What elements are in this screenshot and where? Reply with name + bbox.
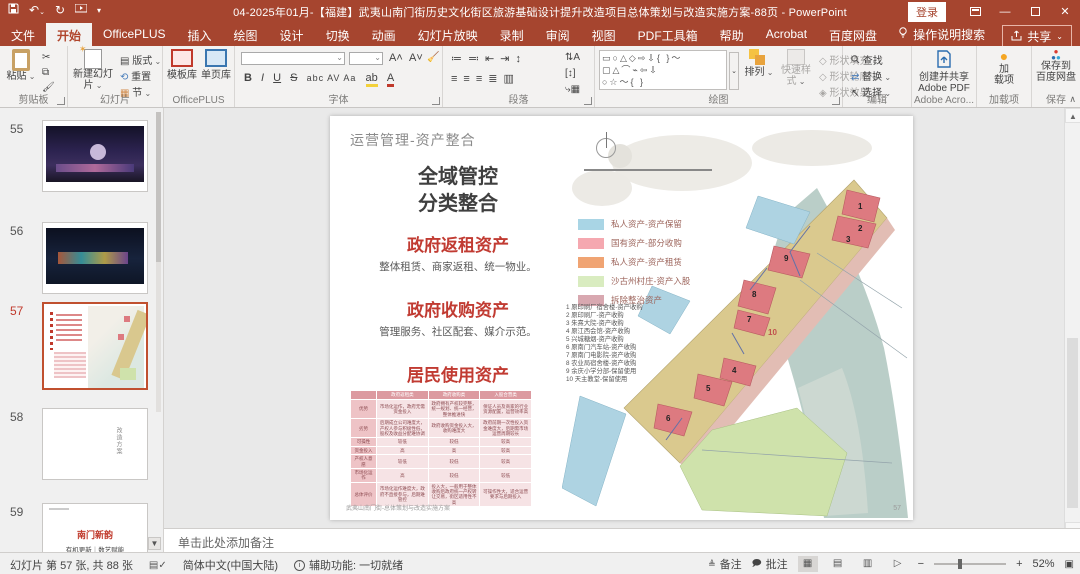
slide-thumbnail-panel: 55 56 57 58 改造方案 [0, 108, 164, 552]
thumbnail-slide-58[interactable]: 58 改造方案 [0, 408, 164, 486]
slide-counter: 幻灯片 第 57 张, 共 88 张 [10, 557, 133, 573]
close-button[interactable]: ✕ [1050, 0, 1080, 23]
tab-insert[interactable]: 插入 [177, 23, 223, 46]
arrange-icon [749, 49, 769, 67]
page-library-icon [205, 49, 227, 67]
italic-button[interactable]: I [261, 72, 264, 84]
ribbon-display-options-icon[interactable] [960, 0, 990, 23]
notes-toggle-button[interactable]: ≜ 备注 [708, 556, 742, 572]
map-marker: 5 [706, 384, 710, 393]
lightbulb-icon [898, 27, 908, 42]
section-desc: 整体租赁、商家返租、统一物业。 [358, 259, 558, 274]
tab-officeplus[interactable]: OfficePLUS [92, 23, 176, 46]
tab-design[interactable]: 设计 [269, 23, 315, 46]
indent-increase-icon[interactable]: ⇥ [500, 53, 515, 65]
replace-icon: ⇄ [851, 72, 862, 83]
strike-button[interactable]: S [290, 72, 297, 84]
decrease-font-icon[interactable]: A˅ [409, 52, 423, 64]
map-marker: 9 [784, 254, 788, 263]
compass-icon [596, 138, 616, 158]
map-marker: 4 [732, 366, 736, 375]
ribbon: 粘贴 ✂ ⧉ 🖌 剪贴板 ✶ 新建幻灯片 ▤ 版式 ⟲ 重置 ▦ 节 幻灯片 模… [0, 46, 1080, 108]
paragraph-dialog-launcher[interactable] [584, 97, 592, 105]
notes-placeholder[interactable]: 单击此处添加备注 [178, 534, 274, 551]
section-title: 居民使用资产 [358, 361, 558, 386]
font-size-combo[interactable] [349, 52, 383, 65]
tab-acrobat[interactable]: Acrobat [755, 23, 818, 46]
headline-line1: 全域管控 [358, 164, 558, 191]
align-text-icon[interactable]: [↕] [565, 68, 576, 79]
find-button[interactable]: 查找 [851, 52, 883, 67]
template-library-button[interactable]: 模板库 [165, 49, 199, 81]
line-spacing-icon[interactable]: ↕ [515, 53, 527, 65]
language-status[interactable]: 简体中文(中国大陆) [183, 557, 278, 573]
spellcheck-icon[interactable]: ▤✓ [149, 560, 167, 571]
shape-fill-icon: ◇ [819, 56, 829, 67]
mini-slide-58-text: 改造方案 [114, 427, 123, 455]
map-marker: 8 [752, 290, 756, 299]
cut-icon[interactable]: ✂ [42, 52, 50, 63]
reset-button[interactable]: ⟲ 重置 [120, 68, 151, 83]
tell-me-search[interactable]: 操作说明搜索 [888, 23, 995, 46]
quick-styles-icon [787, 49, 805, 65]
tab-file[interactable]: 文件 [0, 23, 46, 46]
page-library-button[interactable]: 单页库 [199, 49, 233, 81]
bullets-icon[interactable]: ≔ [451, 53, 468, 65]
legend-item: 沙古州村庄-资产入股 [578, 275, 690, 287]
normal-view-button[interactable]: ▦ [798, 556, 818, 572]
thumbnail-slide-55[interactable]: 55 [0, 120, 164, 198]
collapse-ribbon-icon[interactable]: ∧ [1069, 94, 1076, 105]
group-officeplus: 模板库 单页库 OfficePLUS [163, 46, 235, 107]
clear-format-icon[interactable]: 🧹 [427, 52, 439, 63]
slide-sorter-view-button[interactable]: ▤ [828, 556, 848, 572]
comment-icon: 🗩 [752, 556, 762, 572]
accessibility-status[interactable]: i 辅助功能: 一切就绪 [294, 557, 403, 573]
create-share-pdf-button[interactable]: 创建并共享 Adobe PDF [914, 49, 974, 94]
comments-toggle-button[interactable]: 🗩 批注 [752, 556, 788, 572]
indent-decrease-icon[interactable]: ⇤ [485, 53, 500, 65]
tab-baidu-netdisk[interactable]: 百度网盘 [818, 23, 888, 46]
slide-editor-canvas: 运营管理-资产整合 全域管控 分类整合 政府返租资产 整体租赁、商家返租、统一物… [164, 108, 1080, 552]
font-name-combo[interactable] [241, 52, 345, 65]
font-dialog-launcher[interactable] [432, 97, 440, 105]
slide-title: 运营管理-资产整合 [350, 130, 476, 150]
map-legend: 私人资产-资产保留 国有资产-部分收购 私人资产-资产租赁 沙古州村庄-资产入股… [578, 218, 690, 313]
shape-outline-icon: ◇ [819, 72, 829, 83]
char-spacing-icon[interactable]: abc AV Aa [307, 73, 357, 83]
login-button[interactable]: 登录 [908, 2, 946, 22]
quick-styles-button[interactable]: 快速样式 [777, 49, 815, 87]
addins-icon: ● [979, 49, 1029, 64]
scale-bar [584, 168, 712, 171]
tab-slideshow[interactable]: 幻灯片放映 [407, 23, 489, 46]
title-bar: ↶⌄ ↻ ▾ 04-2025年01月-【福建】武夷山南门街历史文化街区旅游基础设… [0, 0, 1080, 23]
new-slide-icon: ✶ [84, 49, 102, 69]
accessibility-icon: i [294, 560, 305, 571]
slide-footer: 武夷山南门街-总体策划与改造实施方案 [346, 503, 450, 512]
tab-home[interactable]: 开始 [46, 23, 92, 46]
thumbnail-slide-57[interactable]: 57 [0, 302, 164, 398]
share-button[interactable]: 共享 ⌄ [1002, 25, 1072, 48]
map-marker: 2 [858, 224, 862, 233]
tab-animations[interactable]: 动画 [361, 23, 407, 46]
map-marker: 10 [768, 328, 777, 337]
tab-help[interactable]: 帮助 [709, 23, 755, 46]
tab-view[interactable]: 视图 [581, 23, 627, 46]
notes-pane[interactable]: 单击此处添加备注 [164, 528, 1080, 552]
comparison-table: 政府返租类政府收购类入股合营类 优势市场化运作，政府无需资金投入政府拥有产权较完… [350, 390, 532, 507]
editor-scrollbar[interactable]: ▲ ▲ ▼ [1064, 108, 1080, 552]
slide-57-canvas[interactable]: 运营管理-资产整合 全域管控 分类整合 政府返租资产 整体租赁、商家返租、统一物… [330, 116, 913, 520]
map-numbered-list: 1 原印刷厂宿舍楼-资产收购 2 原印刷厂-资产收购 3 朱熹大院-资产收购 4… [566, 304, 643, 384]
section-title: 政府收购资产 [358, 296, 558, 321]
save-to-netdisk-button[interactable]: ●●● 保存到 百度网盘 [1032, 49, 1080, 83]
align-right-icon[interactable]: ≡ [476, 73, 488, 85]
layout-icon: ▤ [120, 56, 132, 67]
align-center-icon[interactable]: ≡ [463, 73, 475, 85]
minimize-button[interactable]: — [990, 0, 1020, 23]
template-library-icon [171, 49, 193, 67]
group-acrobat: 创建并共享 Adobe PDF Adobe Acro... [912, 46, 977, 107]
addins-button[interactable]: ● 加 载项 [979, 49, 1029, 86]
map-marker: 7 [747, 315, 751, 324]
editor-scrollbar-thumb[interactable] [1067, 338, 1078, 508]
status-bar: 幻灯片 第 57 张, 共 88 张 ▤✓ 简体中文(中国大陆) i 辅助功能:… [0, 552, 1080, 574]
copy-icon[interactable]: ⧉ [42, 67, 49, 78]
share-icon [1011, 30, 1022, 44]
thumbnail-slide-56[interactable]: 56 [0, 222, 164, 300]
ribbon-tab-bar: 文件 开始 OfficePLUS 插入 绘图 设计 切换 动画 幻灯片放映 录制… [0, 23, 1080, 46]
columns-icon[interactable]: ▥ [503, 73, 519, 85]
reset-icon: ⟲ [120, 72, 131, 83]
group-slides: ✶ 新建幻灯片 ▤ 版式 ⟲ 重置 ▦ 节 幻灯片 [68, 46, 163, 107]
bold-button[interactable]: B [244, 72, 252, 84]
group-paragraph: ≔≕⇤⇥↕ ≡≡≡≣▥ ⇅A [↕] ⤷▦ 段落 [443, 46, 595, 107]
zoom-level[interactable]: 52% [1033, 558, 1055, 570]
justify-icon[interactable]: ≣ [488, 73, 503, 85]
zoom-slider[interactable] [934, 563, 1006, 565]
drawing-dialog-launcher[interactable] [832, 97, 840, 105]
maximize-button[interactable] [1020, 0, 1050, 23]
font-color-icon[interactable]: A [387, 72, 394, 87]
zoom-slider-handle[interactable] [958, 559, 962, 569]
group-editing: 查找 ⇄ 替换 ↖ 选择 编辑 [843, 46, 912, 107]
night-show-image [46, 126, 144, 182]
night-boats-image [46, 228, 144, 284]
section-desc: 管理服务、社区配套、媒介示范。 [358, 324, 558, 339]
arrange-button[interactable]: 排列 [743, 49, 775, 78]
map-marker: 6 [666, 414, 670, 423]
highlight-color-icon[interactable]: ab [366, 72, 378, 87]
group-addins: ● 加 载项 加载项 [977, 46, 1032, 107]
tab-draw[interactable]: 绘图 [223, 23, 269, 46]
adobe-pdf-icon [914, 49, 974, 72]
numbering-icon[interactable]: ≕ [468, 53, 485, 65]
paste-button[interactable]: 粘贴 [6, 49, 36, 82]
zoom-in-icon[interactable]: + [1016, 558, 1022, 570]
layout-button[interactable]: ▤ 版式 [120, 52, 161, 67]
legend-item: 私人资产-资产租赁 [578, 256, 690, 268]
section-title: 政府返租资产 [358, 231, 558, 256]
group-drawing: ▭○△◇⇨⇩{ }〜 ▢△⌒⌁⇦⇩ ○☆〜{ } ⌄ 排列 快速样式 ◇ 形状填… [595, 46, 843, 107]
scroll-up-icon[interactable]: ▲ [1065, 108, 1080, 123]
text-direction-icon[interactable]: ⇅A [565, 52, 580, 63]
slide-page-number: 57 [893, 505, 901, 512]
increase-font-icon[interactable]: A˄ [389, 52, 403, 64]
map-marker: 3 [846, 235, 850, 244]
zoom-out-icon[interactable]: − [918, 558, 924, 570]
master-plan-map: 私人资产-资产保留 国有资产-部分收购 私人资产-资产租赁 沙古州村庄-资产入股… [562, 118, 910, 518]
slideshow-view-button[interactable]: ▷ [888, 556, 908, 572]
notes-toggle-icon: ≜ [708, 559, 716, 570]
paste-icon [12, 49, 30, 71]
mini-slide-59-title: 南门新韵 [43, 528, 147, 541]
group-font: A˄ A˅ 🧹 B I U S abc AV Aa ab A 字体 [235, 46, 443, 107]
mini-slide-57 [44, 304, 146, 388]
thumbnail-scrollbar-thumb[interactable] [156, 112, 161, 262]
map-marker: 1 [858, 202, 862, 211]
legend-item: 私人资产-资产保留 [578, 218, 690, 230]
align-left-icon[interactable]: ≡ [451, 73, 463, 85]
underline-button[interactable]: U [273, 72, 281, 84]
thumbnail-panel-collapse-icon[interactable]: ▼ [148, 537, 161, 550]
shape-gallery-more-icon[interactable]: ⌄ [729, 52, 739, 90]
new-slide-button[interactable]: ✶ 新建幻灯片 [70, 49, 116, 91]
clipboard-dialog-launcher[interactable] [57, 97, 65, 105]
find-icon [851, 56, 863, 67]
shape-gallery[interactable]: ▭○△◇⇨⇩{ }〜 ▢△⌒⌁⇦⇩ ○☆〜{ } [599, 50, 727, 90]
tab-transitions[interactable]: 切换 [315, 23, 361, 46]
fit-to-window-icon[interactable]: ▣ [1065, 559, 1074, 570]
group-save: ●●● 保存到 百度网盘 保存 ∧ [1032, 46, 1080, 107]
reading-view-button[interactable]: ▥ [858, 556, 878, 572]
tab-review[interactable]: 审阅 [535, 23, 581, 46]
tab-pdf-tools[interactable]: PDF工具箱 [627, 23, 709, 46]
headline-line2: 分类整合 [358, 191, 558, 218]
tab-record[interactable]: 录制 [489, 23, 535, 46]
legend-item: 国有资产-部分收购 [578, 237, 690, 249]
group-clipboard: 粘贴 ✂ ⧉ 🖌 剪贴板 [0, 46, 68, 107]
replace-button[interactable]: ⇄ 替换 [851, 68, 891, 83]
baidu-netdisk-icon: ●●● [1032, 49, 1080, 61]
